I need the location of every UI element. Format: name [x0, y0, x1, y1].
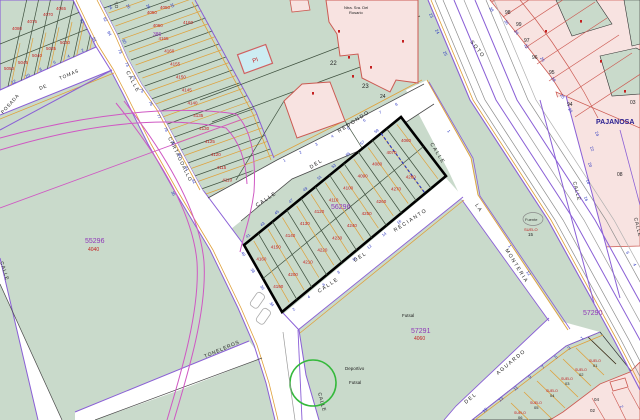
svg-text:5040: 5040	[32, 53, 43, 58]
svg-text:Futsal: Futsal	[402, 313, 414, 318]
svg-text:4220: 4220	[317, 248, 328, 253]
svg-text:4115: 4115	[217, 165, 227, 170]
svg-text:95: 95	[549, 70, 555, 76]
svg-text:4050: 4050	[147, 10, 158, 15]
svg-text:4140: 4140	[188, 100, 199, 105]
svg-text:4090: 4090	[358, 174, 369, 179]
svg-text:08: 08	[617, 172, 623, 178]
svg-text:4070: 4070	[387, 150, 398, 155]
svg-text:56296: 56296	[331, 204, 351, 211]
svg-text:23: 23	[362, 84, 369, 90]
svg-text:4260: 4260	[376, 199, 387, 204]
svg-text:55296: 55296	[85, 238, 105, 245]
svg-text:PAJANOSA: PAJANOSA	[596, 119, 634, 126]
svg-text:4120: 4120	[211, 152, 222, 157]
svg-text:5045: 5045	[18, 60, 29, 65]
svg-text:4080: 4080	[372, 162, 383, 167]
svg-text:57290: 57290	[583, 310, 603, 317]
svg-text:4120: 4120	[314, 209, 325, 214]
svg-text:94: 94	[567, 102, 573, 108]
svg-text:4250: 4250	[362, 211, 373, 216]
svg-text:96: 96	[532, 55, 538, 61]
svg-text:4280: 4280	[406, 175, 417, 180]
svg-text:Deportivo: Deportivo	[345, 366, 365, 371]
svg-text:4200: 4200	[288, 272, 299, 277]
svg-text:4125: 4125	[205, 139, 216, 144]
svg-text:4150: 4150	[271, 245, 282, 250]
svg-text:5030: 5030	[60, 40, 71, 45]
svg-text:4160: 4160	[164, 49, 175, 54]
svg-text:03: 03	[565, 381, 570, 386]
svg-text:4130: 4130	[199, 126, 210, 131]
svg-text:Fuente: Fuente	[525, 217, 538, 222]
svg-text:4110: 4110	[329, 197, 339, 202]
svg-text:4240: 4240	[347, 223, 358, 228]
svg-text:57291: 57291	[411, 328, 431, 335]
svg-text:03: 03	[630, 100, 636, 106]
svg-text:4080: 4080	[12, 26, 23, 31]
svg-text:06: 06	[518, 415, 523, 420]
svg-text:04: 04	[594, 397, 600, 402]
svg-text:4050: 4050	[160, 5, 171, 10]
svg-text:4210: 4210	[303, 260, 314, 265]
svg-text:02: 02	[590, 408, 596, 413]
svg-text:22: 22	[330, 61, 337, 67]
svg-text:4230: 4230	[332, 235, 343, 240]
svg-text:4060: 4060	[153, 23, 164, 28]
svg-text:4070: 4070	[43, 12, 54, 17]
svg-text:Futsal: Futsal	[349, 380, 361, 385]
svg-text:4150: 4150	[176, 75, 187, 80]
svg-text:4190: 4190	[273, 284, 284, 289]
svg-text:97: 97	[524, 38, 530, 44]
svg-text:4145: 4145	[182, 87, 193, 92]
svg-text:4270: 4270	[391, 187, 402, 192]
svg-text:5050: 5050	[4, 66, 15, 71]
svg-text:5035: 5035	[46, 46, 57, 51]
svg-text:15: 15	[528, 232, 534, 237]
svg-text:4065: 4065	[56, 6, 67, 11]
svg-text:Rosario: Rosario	[349, 10, 364, 15]
svg-text:02: 02	[579, 372, 584, 377]
svg-text:4135: 4135	[193, 113, 204, 118]
svg-text:4160: 4160	[183, 20, 194, 25]
svg-text:98: 98	[505, 10, 511, 16]
svg-text:4060: 4060	[401, 138, 412, 143]
svg-text:4040: 4040	[88, 247, 99, 253]
svg-text:4155: 4155	[170, 62, 181, 67]
svg-text:4060: 4060	[414, 336, 425, 342]
svg-text:4100: 4100	[343, 186, 354, 191]
svg-text:4075: 4075	[27, 19, 38, 24]
svg-text:386: 386	[153, 32, 162, 38]
svg-text:24: 24	[380, 94, 386, 100]
svg-text:4110: 4110	[222, 178, 232, 183]
svg-text:4130: 4130	[300, 221, 311, 226]
svg-text:01: 01	[593, 363, 598, 368]
svg-text:04: 04	[550, 393, 555, 398]
svg-text:99: 99	[516, 22, 522, 28]
svg-text:4160: 4160	[256, 257, 267, 262]
svg-text:05: 05	[534, 405, 539, 410]
svg-text:4140: 4140	[285, 233, 296, 238]
